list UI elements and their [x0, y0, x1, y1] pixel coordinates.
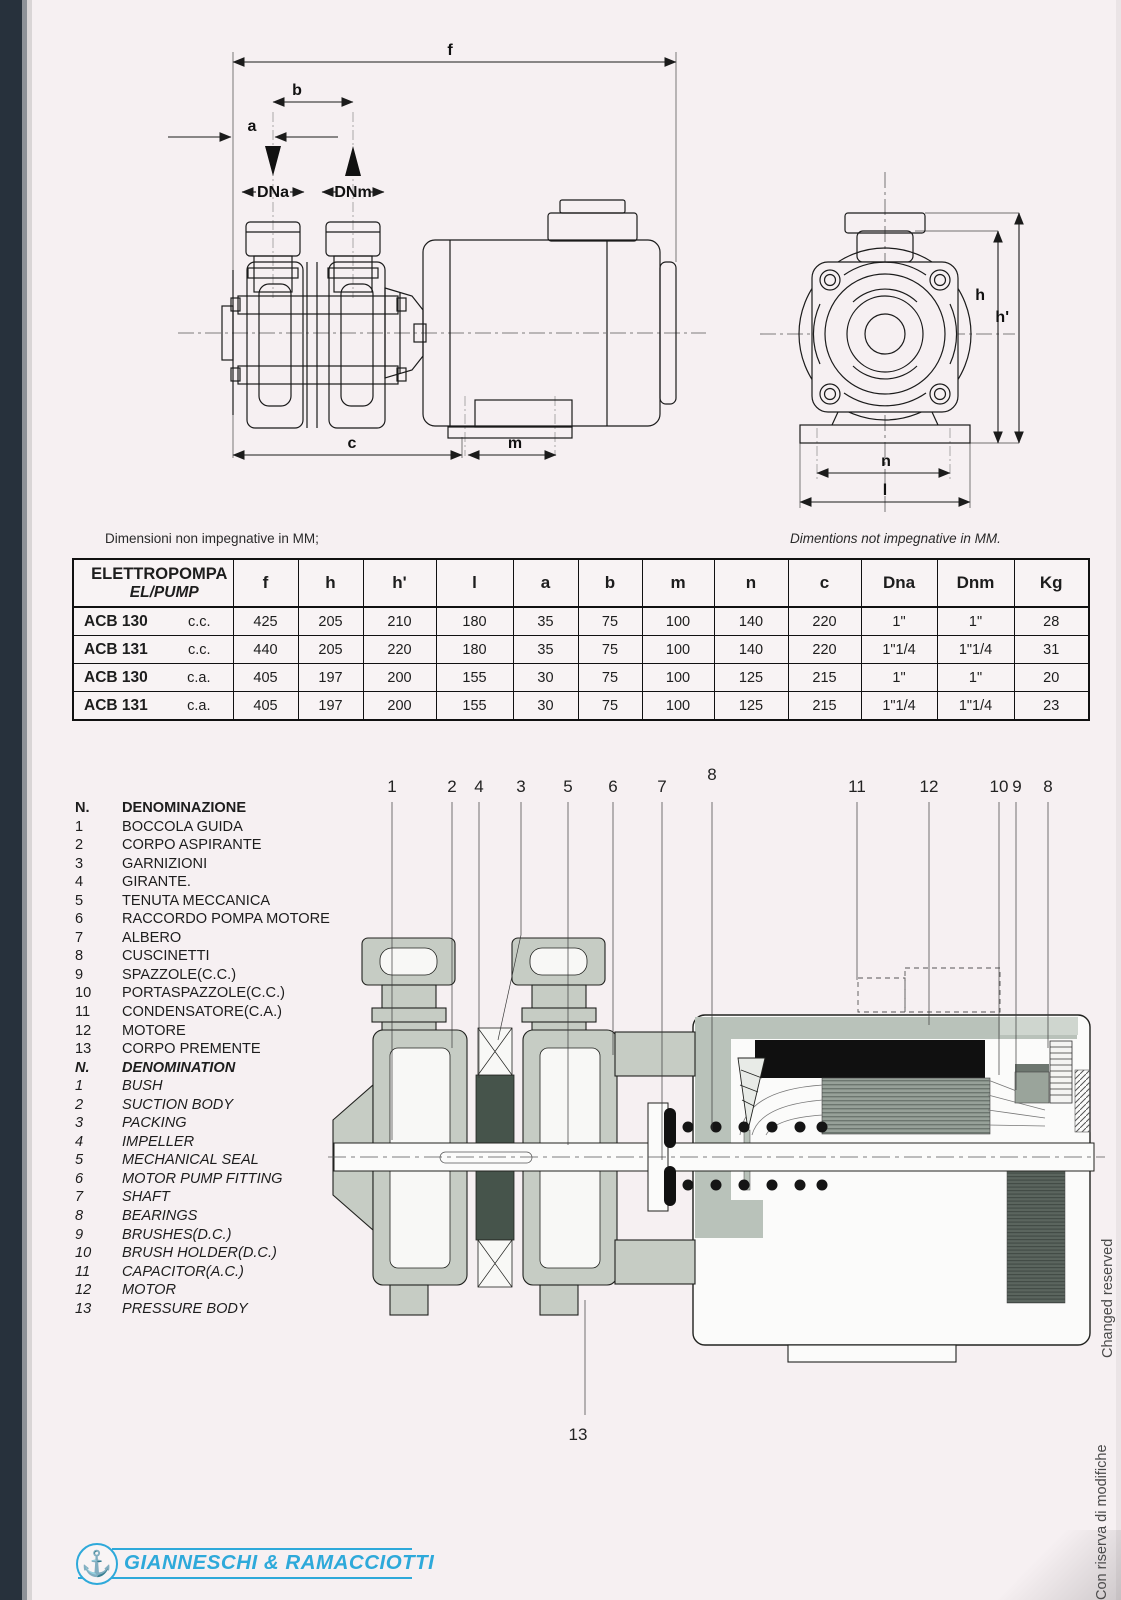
col-header: m: [642, 559, 714, 607]
callout-10: 10: [990, 777, 1009, 796]
col-header: l: [436, 559, 513, 607]
caption-english: Dimentions not impegnative in MM.: [790, 531, 1001, 546]
dim-label-b: b: [292, 82, 302, 99]
col-header: Kg: [1014, 559, 1089, 607]
dim-label-h: h: [975, 287, 985, 304]
table-header-model: ELETTROPOMPA EL/PUMP: [73, 559, 233, 607]
dim-label-a: a: [248, 118, 257, 135]
logo-line: [112, 1548, 412, 1550]
dimensions-table: ELETTROPOMPA EL/PUMP f h h' l a b m n c …: [72, 558, 1090, 721]
table-row: ACB 130c.c. 425205 210180 3575 100140 22…: [73, 607, 1089, 636]
table-row: ACB 131c.c. 440205 220180 3575 100140 22…: [73, 636, 1089, 664]
callout-12: 12: [920, 777, 939, 796]
caption-italian: Dimensioni non impegnative in MM;: [105, 531, 319, 546]
callout-3: 3: [516, 777, 525, 796]
col-header: n: [714, 559, 788, 607]
table-row: ACB 131c.a. 405197 200155 3075 100125 21…: [73, 692, 1089, 721]
side-view-drawing: [222, 200, 676, 438]
callout-2: 2: [447, 777, 456, 796]
datasheet-page: f b a DNa DNm c m h h' n l Dimensioni no…: [0, 0, 1121, 1600]
col-header: f: [233, 559, 298, 607]
callout-7: 7: [657, 777, 666, 796]
brand-name: GIANNESCHI & RAMACCIOTTI: [124, 1551, 434, 1575]
footer-logo: ⚓ GIANNESCHI & RAMACCIOTTI: [74, 1541, 434, 1587]
col-header: h: [298, 559, 363, 607]
callout-13: 13: [569, 1425, 588, 1444]
dim-label-dna: DNa: [257, 184, 289, 201]
logo-circle: ⚓: [76, 1543, 118, 1585]
dim-label-dnm: DNm: [334, 184, 371, 201]
callout-8: 8: [707, 765, 716, 784]
col-header: h': [363, 559, 436, 607]
callout-11: 11: [848, 777, 866, 796]
dim-label-n: n: [881, 453, 891, 470]
col-header: b: [578, 559, 642, 607]
callout-9: 9: [1012, 777, 1021, 796]
callout-1: 1: [387, 777, 396, 796]
margin-note-english: Changed reserved: [1100, 1239, 1116, 1358]
table-header-row: ELETTROPOMPA EL/PUMP f h h' l a b m n c …: [73, 559, 1089, 607]
col-header: Dnm: [937, 559, 1014, 607]
callout-5: 5: [563, 777, 572, 796]
table-row: ACB 130c.a. 405197 200155 3075 100125 21…: [73, 664, 1089, 692]
dim-label-h-prime: h': [995, 309, 1009, 326]
dim-label-c: c: [348, 435, 357, 452]
scan-corner-shade: [981, 1530, 1121, 1600]
dim-label-f: f: [447, 42, 453, 59]
dim-label-m: m: [508, 435, 522, 452]
pump-section: [333, 938, 695, 1315]
anchor-icon: ⚓: [81, 1552, 112, 1577]
col-header: Dna: [861, 559, 937, 607]
callout-4: 4: [474, 777, 483, 796]
front-view-drawing: [799, 213, 971, 443]
col-header: c: [788, 559, 861, 607]
dimension-drawing: f b a DNa DNm c m h h' n l: [0, 0, 1121, 530]
callout-8b: 8: [1043, 777, 1052, 796]
discharge-flow-arrow: [345, 146, 361, 176]
logo-line: [78, 1577, 412, 1579]
cross-section-drawing: 1 2 4 3 5 6 7 8 11 12 10 9 8 13: [0, 740, 1121, 1460]
suction-flow-arrow: [265, 146, 281, 176]
callout-6: 6: [608, 777, 617, 796]
col-header: a: [513, 559, 578, 607]
dim-label-l: l: [883, 482, 887, 499]
